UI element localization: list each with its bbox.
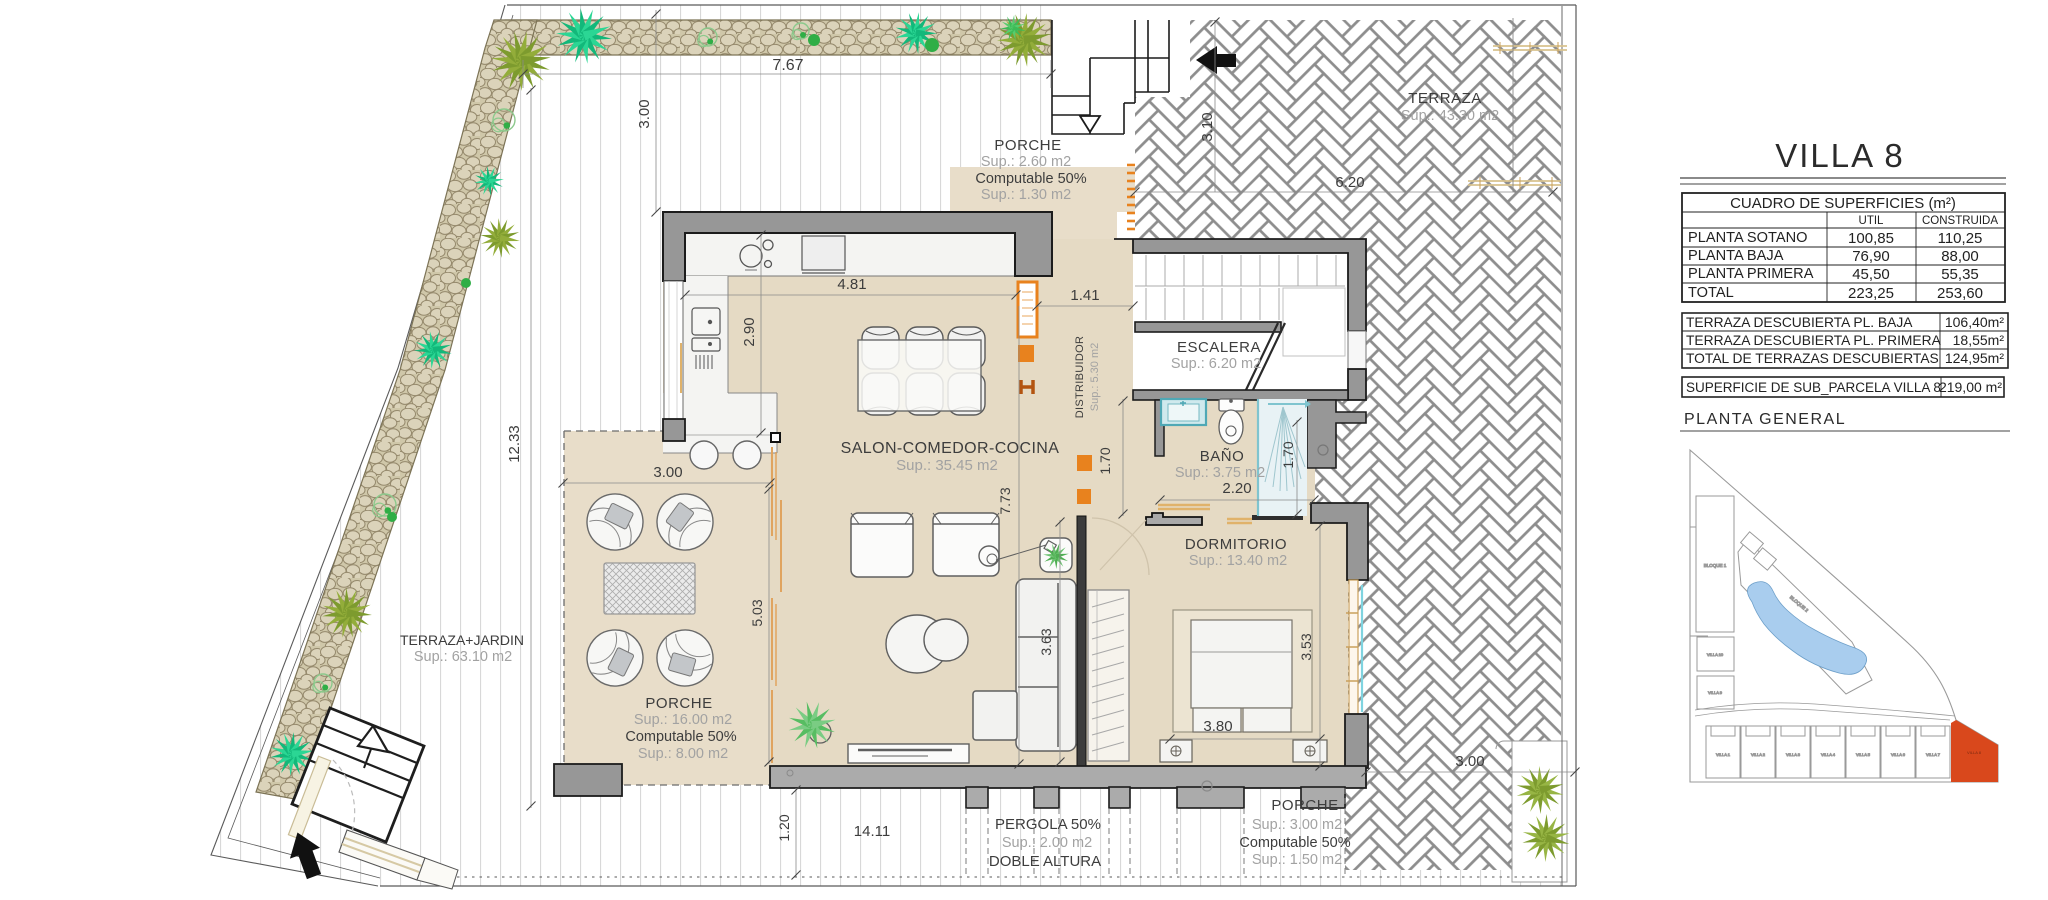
svg-text:Sup.: 5.30 m2: Sup.: 5.30 m2 (1089, 343, 1101, 412)
svg-text:VILLA 6: VILLA 6 (1891, 752, 1906, 757)
svg-text:Sup.: 8.00 m2: Sup.: 8.00 m2 (638, 746, 728, 762)
svg-text:3.63: 3.63 (1038, 628, 1054, 655)
svg-text:SUPERFICIE DE SUB_PARCELA VILL: SUPERFICIE DE SUB_PARCELA VILLA 8 (1686, 380, 1941, 395)
svg-text:VILLA 4: VILLA 4 (1821, 752, 1836, 757)
svg-text:3.80: 3.80 (1203, 718, 1232, 735)
svg-text:VILLA 3: VILLA 3 (1786, 752, 1801, 757)
svg-text:14.11: 14.11 (854, 823, 890, 840)
svg-text:3.10: 3.10 (1199, 112, 1216, 141)
svg-text:DORMITORIO: DORMITORIO (1185, 536, 1287, 553)
svg-text:Sup.: 63.10 m2: Sup.: 63.10 m2 (414, 649, 512, 665)
svg-text:223,25: 223,25 (1848, 285, 1894, 302)
svg-text:Computable 50%: Computable 50% (1239, 835, 1350, 851)
svg-text:Sup.: 6.20 m2: Sup.: 6.20 m2 (1171, 356, 1261, 372)
svg-text:Sup.: 35.45 m2: Sup.: 35.45 m2 (896, 457, 998, 474)
svg-text:VILLA 7: VILLA 7 (1926, 752, 1941, 757)
svg-text:100,85: 100,85 (1848, 230, 1894, 247)
svg-text:UTIL: UTIL (1859, 215, 1885, 227)
svg-text:PORCHE: PORCHE (994, 137, 1061, 154)
svg-text:3.00: 3.00 (636, 99, 653, 128)
svg-text:253,60: 253,60 (1937, 285, 1983, 302)
svg-text:TOTAL: TOTAL (1688, 285, 1734, 301)
svg-text:CUADRO DE SUPERFICIES (m²): CUADRO DE SUPERFICIES (m²) (1730, 195, 1956, 212)
svg-text:7.73: 7.73 (997, 487, 1013, 514)
svg-text:Sup.: 3.75 m2: Sup.: 3.75 m2 (1175, 465, 1265, 481)
svg-text:6.20: 6.20 (1335, 174, 1364, 191)
svg-text:55,35: 55,35 (1941, 266, 1979, 283)
svg-text:VILLA 8: VILLA 8 (1775, 137, 1905, 174)
svg-text:12.33: 12.33 (506, 425, 523, 463)
svg-text:PORCHE: PORCHE (645, 695, 712, 712)
svg-text:PORCHE: PORCHE (1271, 797, 1338, 814)
svg-text:DISTRIBUIDOR: DISTRIBUIDOR (1074, 336, 1086, 418)
svg-text:3.53: 3.53 (1298, 633, 1314, 660)
svg-text:1.41: 1.41 (1070, 287, 1099, 304)
svg-text:VILLA 1: VILLA 1 (1716, 752, 1731, 757)
svg-text:1.70: 1.70 (1097, 447, 1113, 474)
svg-text:DOBLE ALTURA: DOBLE ALTURA (989, 853, 1101, 870)
svg-text:110,25: 110,25 (1938, 230, 1983, 247)
svg-text:76,90: 76,90 (1852, 248, 1890, 265)
svg-text:Sup.: 16.00 m2: Sup.: 16.00 m2 (634, 712, 732, 728)
svg-text:PLANTA SOTANO: PLANTA SOTANO (1688, 230, 1807, 246)
svg-text:Computable 50%: Computable 50% (625, 729, 736, 745)
svg-text:18,55m²: 18,55m² (1953, 332, 2005, 348)
svg-text:2.20: 2.20 (1222, 480, 1251, 497)
svg-text:PLANTA GENERAL: PLANTA GENERAL (1684, 411, 1846, 428)
svg-text:VILLA 2: VILLA 2 (1751, 752, 1766, 757)
svg-text:TERRAZA+JARDIN: TERRAZA+JARDIN (400, 632, 524, 648)
svg-text:Sup.: 2.60 m2: Sup.: 2.60 m2 (981, 154, 1071, 170)
svg-text:VILLA 10: VILLA 10 (1707, 652, 1724, 657)
svg-text:VILLA 9: VILLA 9 (1708, 690, 1723, 695)
svg-text:Sup.: 1.50 m2: Sup.: 1.50 m2 (1252, 852, 1342, 868)
svg-text:TERRAZA DESCUBIERTA PL. PRIMER: TERRAZA DESCUBIERTA PL. PRIMERA (1686, 333, 1942, 348)
svg-text:BLOQUE 1: BLOQUE 1 (1704, 563, 1727, 568)
svg-text:PLANTA BAJA: PLANTA BAJA (1688, 248, 1784, 264)
svg-text:CONSTRUIDA: CONSTRUIDA (1922, 215, 1998, 227)
svg-text:5.03: 5.03 (749, 599, 765, 626)
svg-text:Sup.: 3.00 m2: Sup.: 3.00 m2 (1252, 817, 1342, 833)
svg-text:45,50: 45,50 (1852, 266, 1890, 283)
svg-text:PLANTA PRIMERA: PLANTA PRIMERA (1688, 266, 1814, 282)
svg-text:1.20: 1.20 (776, 814, 792, 841)
svg-text:TERRAZA DESCUBIERTA PL. BAJA: TERRAZA DESCUBIERTA PL. BAJA (1686, 315, 1913, 330)
svg-text:PERGOLA 50%: PERGOLA 50% (995, 816, 1101, 833)
svg-text:Sup.: 43.30 m2: Sup.: 43.30 m2 (1401, 108, 1499, 124)
svg-text:VILLA 5: VILLA 5 (1856, 752, 1871, 757)
svg-text:106,40m²: 106,40m² (1945, 314, 2004, 330)
svg-text:SALON-COMEDOR-COCINA: SALON-COMEDOR-COCINA (841, 440, 1060, 457)
svg-text:VILLA 8: VILLA 8 (1967, 750, 1982, 755)
svg-text:Sup.: 13.40 m2: Sup.: 13.40 m2 (1189, 553, 1287, 569)
svg-text:3.00: 3.00 (1455, 753, 1484, 770)
svg-text:219,00 m²: 219,00 m² (1939, 379, 2002, 395)
svg-text:1.70: 1.70 (1280, 441, 1296, 468)
svg-text:2.90: 2.90 (741, 317, 758, 346)
svg-text:Sup.: 1.30 m2: Sup.: 1.30 m2 (981, 187, 1071, 203)
svg-text:4.81: 4.81 (837, 276, 866, 293)
svg-text:TERRAZA: TERRAZA (1408, 90, 1482, 107)
svg-text:Computable 50%: Computable 50% (975, 171, 1086, 187)
svg-text:3.00: 3.00 (653, 464, 682, 481)
svg-text:ESCALERA: ESCALERA (1177, 339, 1261, 356)
svg-text:BAÑO: BAÑO (1200, 448, 1245, 465)
svg-text:88,00: 88,00 (1941, 248, 1979, 265)
svg-text:TOTAL DE TERRAZAS DESCUBIERTAS: TOTAL DE TERRAZAS DESCUBIERTAS (1686, 351, 1939, 366)
svg-text:Sup.: 2.00 m2: Sup.: 2.00 m2 (1002, 835, 1092, 851)
svg-text:124,95m²: 124,95m² (1945, 350, 2004, 366)
svg-text:7.67: 7.67 (772, 57, 803, 74)
